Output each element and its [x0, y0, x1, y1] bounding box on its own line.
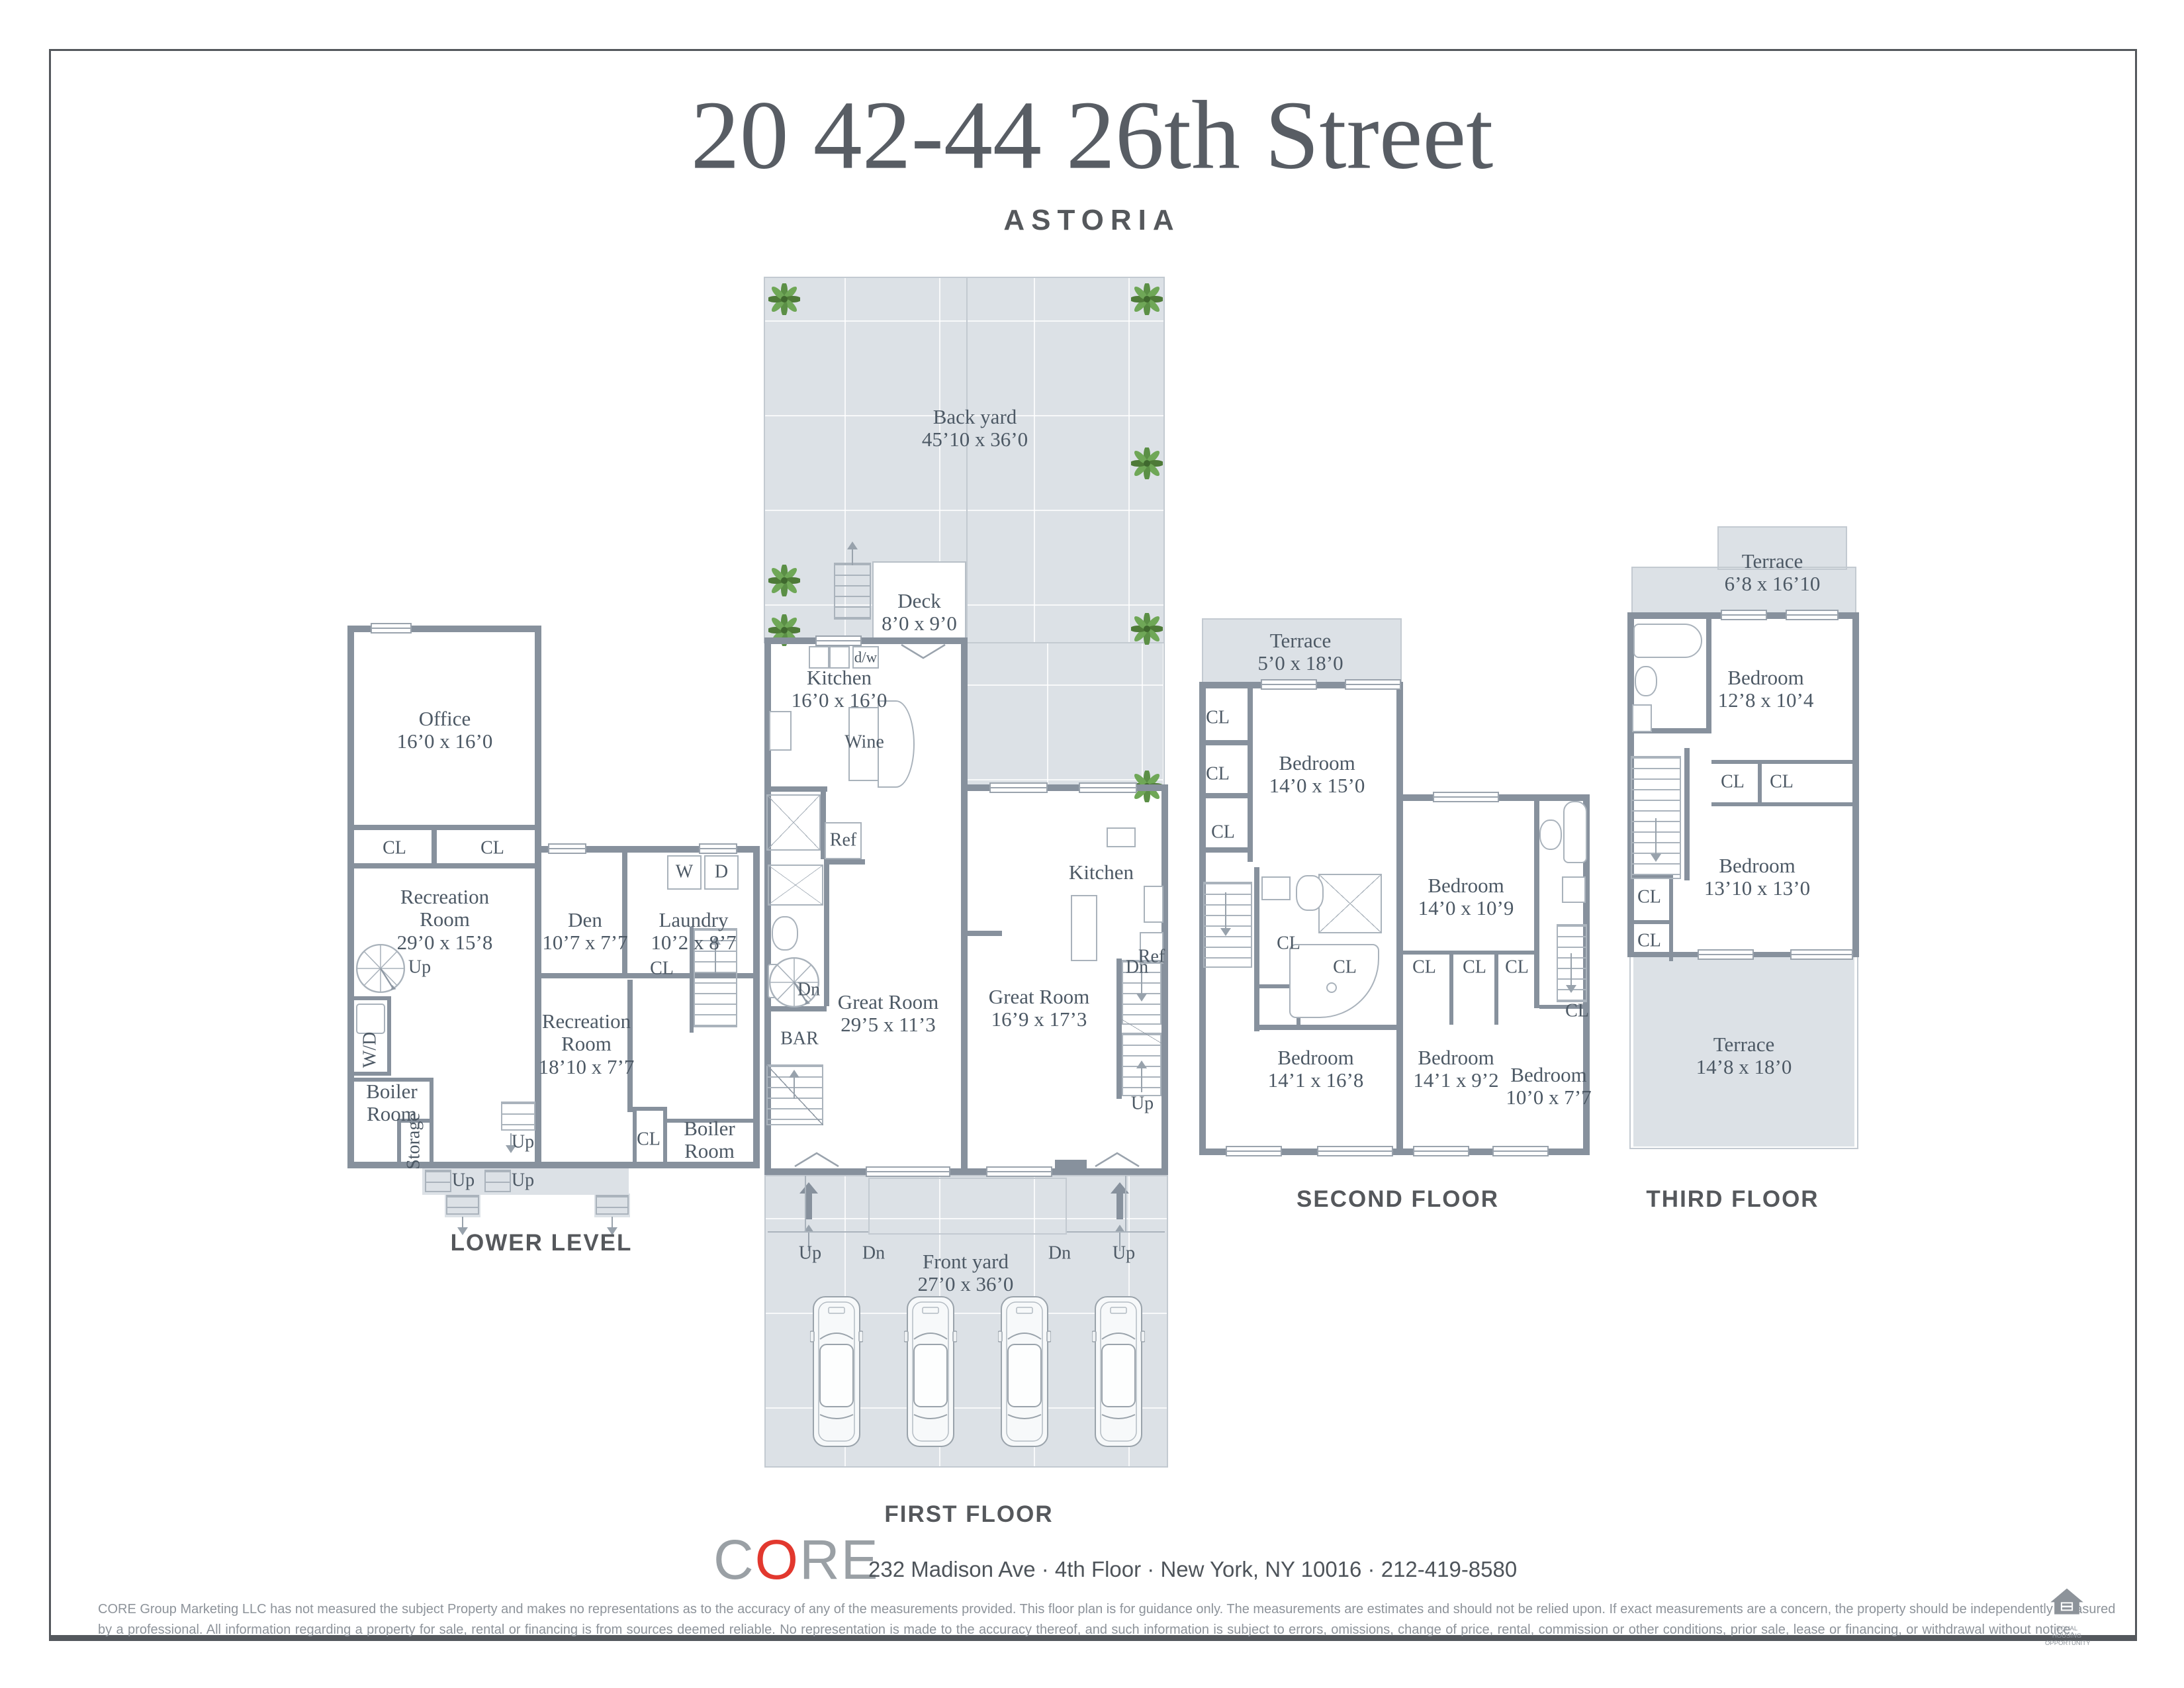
wall-segment — [1199, 740, 1253, 745]
lbl-floors-second-bed4-name: Bedroom — [1418, 1047, 1494, 1069]
lbl-floors-second-bed2-name: Bedroom — [1428, 874, 1504, 897]
lbl-floors-first-front-name: Front yard — [923, 1250, 1009, 1273]
lbl-floors-first-deck-name: Deck — [897, 590, 940, 612]
thin-line — [1067, 1231, 1165, 1233]
lbl-floors-second-bed1-dims: 14’0 x 15’0 — [1269, 774, 1365, 797]
fixture — [1563, 801, 1587, 863]
wall-segment — [1534, 798, 1539, 1008]
lbl-misc-up: Up — [512, 1171, 534, 1192]
window — [866, 1166, 950, 1177]
fixture — [1635, 666, 1657, 696]
lbl-misc-ref: Ref — [830, 831, 856, 851]
fixture — [356, 1004, 385, 1034]
lbl-misc-w: W — [676, 863, 693, 883]
plant-icon — [1131, 613, 1163, 645]
lbl-floors-first-kitchenL-name: Kitchen — [807, 667, 872, 689]
wall-segment — [1259, 1025, 1402, 1030]
lbl-floors-third-bed2-name: Bedroom — [1719, 855, 1795, 877]
lbl-misc-cl: CL — [1206, 765, 1230, 785]
lbl-floors-lower-name: LOWER LEVEL — [451, 1231, 633, 1256]
fixture — [1296, 875, 1324, 911]
lbl-floors-third-bed2-dims: 13’10 x 13’0 — [1704, 877, 1810, 900]
lbl-floors-second-bed3-dims: 14’1 x 16’8 — [1268, 1069, 1364, 1092]
lbl-floors-second-bed4-dims: 14’1 x 9’2 — [1413, 1069, 1498, 1092]
wall-segment — [1199, 793, 1253, 798]
area-outline — [966, 277, 1165, 790]
wall-segment — [1684, 748, 1690, 880]
staircase — [484, 1170, 511, 1192]
window — [1433, 792, 1499, 802]
lbl-floors-lower-laundry-dims: 10’2 x 8’7 — [651, 931, 736, 954]
lbl-floors-second-bed1-name: Bedroom — [1279, 752, 1355, 774]
window — [815, 635, 862, 646]
lbl-misc-cl: CL — [383, 839, 406, 859]
lbl-floors-third-terraceBottom-dims: 14’8 x 18’0 — [1696, 1056, 1792, 1078]
lbl-misc-d: D — [715, 863, 728, 883]
core-logo: CORE — [713, 1534, 880, 1585]
fixture — [1562, 876, 1586, 903]
lbl-misc-cl: CL — [480, 839, 504, 859]
window — [1786, 610, 1839, 620]
staircase — [834, 563, 871, 620]
lbl-misc-storage: Storage — [404, 1113, 425, 1170]
wall-segment — [764, 786, 827, 792]
staircase — [446, 1195, 479, 1215]
wall-segment — [1852, 612, 1859, 957]
lbl-misc-cl: CL — [1333, 958, 1357, 978]
plant-icon — [1131, 283, 1163, 315]
lbl-floors-second-bed5-dims: 10’0 x 7’7 — [1506, 1086, 1591, 1109]
lbl-misc-dn: Dn — [797, 980, 820, 1001]
car-icon — [810, 1289, 863, 1452]
car-icon — [1092, 1289, 1145, 1452]
down-arrow — [1566, 953, 1576, 993]
lbl-misc-cl: CL — [1637, 888, 1661, 908]
wall-segment — [1669, 875, 1673, 961]
lbl-misc-up: Up — [1113, 1244, 1135, 1264]
lbl-misc-up: Up — [799, 1244, 821, 1264]
wall-segment — [1758, 760, 1762, 806]
lbl-floors-first-backyard-dims: 45’10 x 36’0 — [922, 428, 1028, 451]
lbl-misc-up: Up — [1131, 1094, 1154, 1115]
shower-x-box — [766, 794, 821, 851]
fixture — [1071, 895, 1097, 961]
lbl-misc-cl: CL — [1721, 773, 1745, 793]
lbl-floors-lower-den-dims: 10’7 x 7’7 — [542, 931, 627, 954]
lbl-floors-first-greatL-dims: 29’5 x 11’3 — [841, 1013, 936, 1036]
shower-x-box — [768, 865, 823, 906]
page-title: 20 42-44 26th Street — [691, 82, 1494, 190]
wall-segment — [1400, 951, 1534, 955]
lbl-misc-dn: Dn — [1048, 1244, 1071, 1264]
window — [371, 623, 412, 633]
core-logo-c: C — [713, 1528, 755, 1591]
door-swing-icon — [900, 643, 946, 659]
fixture — [1144, 886, 1163, 923]
lbl-floors-first-kitchenL-dims: 16’0 x 16’0 — [792, 689, 887, 712]
lbl-misc-cl: CL — [1505, 958, 1529, 978]
window — [1226, 1146, 1282, 1156]
lbl-floors-second-bed2-dims: 14’0 x 10’9 — [1418, 897, 1514, 919]
down-arrow — [1651, 818, 1661, 862]
window — [1413, 1146, 1469, 1156]
staircase — [501, 1102, 535, 1131]
wall-segment — [387, 996, 391, 1076]
wall-segment — [353, 825, 536, 830]
lbl-floors-first-greatL-name: Great Room — [838, 991, 938, 1013]
fixture — [1539, 820, 1562, 850]
window — [1721, 610, 1767, 620]
lbl-floors-third-terraceBottom-name: Terrace — [1713, 1033, 1774, 1056]
lbl-floors-first-kitchenR-name: Kitchen — [1069, 861, 1134, 884]
lbl-misc-bar: BAR — [780, 1029, 819, 1050]
lbl-misc-cl: CL — [650, 959, 674, 980]
lbl-floors-second-terrace-dims: 5’0 x 18’0 — [1257, 652, 1343, 675]
window — [1079, 782, 1137, 793]
door-swing-icon — [1093, 1152, 1141, 1168]
wall-segment — [824, 859, 865, 865]
wall-segment — [1711, 760, 1857, 764]
staircase — [425, 1170, 451, 1192]
lbl-misc-cl: CL — [1211, 823, 1235, 843]
fixture — [1326, 982, 1337, 993]
lbl-floors-lower-office-dims: 16’0 x 16’0 — [397, 730, 493, 753]
wall-segment — [1706, 619, 1711, 733]
lbl-floors-third-name: THIRD FLOOR — [1646, 1187, 1819, 1213]
window — [986, 1166, 1052, 1177]
lbl-floors-first-greatR-name: Great Room — [989, 986, 1089, 1008]
page-subtitle: ASTORIA — [1003, 205, 1180, 236]
window — [699, 843, 737, 854]
window — [1261, 679, 1317, 690]
wall-segment — [397, 1119, 401, 1165]
wall-segment — [622, 846, 627, 978]
lbl-floors-lower-den-name: Den — [568, 909, 602, 931]
up-arrow — [1136, 1060, 1147, 1092]
lbl-floors-first-name: FIRST FLOOR — [884, 1502, 1053, 1528]
lbl-floors-second-bed3-name: Bedroom — [1277, 1047, 1353, 1069]
wall-segment — [535, 626, 541, 1168]
wall-segment — [353, 996, 391, 1000]
lbl-floors-lower-rec1-dims: 29’0 x 15’8 — [397, 931, 493, 954]
lbl-floors-lower-rec2-dims: 18’10 x 7’7 — [539, 1056, 635, 1078]
wall-segment — [1055, 1160, 1087, 1175]
lbl-misc-dn: Dn — [862, 1244, 885, 1264]
lbl-misc-dn: Dn — [1126, 958, 1148, 978]
area-outline — [868, 1178, 1067, 1235]
wall-segment — [1161, 784, 1168, 1175]
lbl-misc-dw: d/w — [854, 649, 878, 665]
window — [1317, 1146, 1393, 1156]
window — [989, 782, 1048, 793]
down-arrow — [1220, 892, 1231, 936]
entry-arrow — [799, 1182, 818, 1219]
wall-segment — [1248, 688, 1253, 862]
fixture — [809, 646, 829, 669]
lbl-misc-cl: CL — [637, 1130, 660, 1150]
lbl-misc-cl: CL — [1412, 958, 1436, 978]
lbl-floors-lower-boiler2-name: Boiler Room — [684, 1117, 735, 1162]
staircase — [596, 1195, 629, 1215]
fixture — [1633, 624, 1702, 658]
stair-divider — [1122, 1019, 1161, 1043]
lbl-floors-second-name: SECOND FLOOR — [1297, 1187, 1499, 1213]
plant-icon — [768, 283, 800, 315]
wall-segment — [1711, 802, 1857, 806]
wall-segment — [1627, 920, 1671, 924]
thin-line — [805, 1176, 806, 1233]
wall-segment — [1449, 951, 1453, 1025]
equal-housing-logo: EQUAL HOUSING OPPORTUNITY — [2045, 1587, 2089, 1647]
wall-segment — [353, 1072, 391, 1076]
thin-line — [1125, 1176, 1126, 1233]
fixture — [772, 916, 798, 951]
lbl-floors-first-deck-dims: 8’0 x 9’0 — [882, 612, 957, 635]
lbl-misc-cl: CL — [1770, 773, 1794, 793]
lbl-misc-wd: W/D — [361, 1032, 381, 1068]
disclaimer-line-2: by a professional. All information regar… — [98, 1622, 2074, 1638]
lbl-misc-cl: CL — [1565, 1002, 1589, 1022]
car-icon — [998, 1289, 1051, 1452]
lbl-floors-second-bed5-name: Bedroom — [1510, 1064, 1586, 1086]
lbl-floors-first-greatR-dims: 16’9 x 17’3 — [991, 1008, 1087, 1031]
lbl-floors-lower-rec2-name: Recreation Room — [542, 1010, 631, 1055]
wall-segment — [633, 1107, 666, 1111]
lbl-misc-up: Up — [512, 1133, 534, 1153]
wall-segment — [824, 865, 829, 1006]
wall-segment — [961, 637, 968, 1175]
lbl-misc-cl: CL — [1463, 958, 1486, 978]
wall-segment — [1396, 682, 1403, 1155]
lbl-floors-third-bed1-name: Bedroom — [1727, 667, 1803, 689]
window — [1790, 949, 1853, 960]
wall-segment — [1199, 847, 1253, 853]
lbl-misc-wine: Wine — [844, 733, 884, 753]
lbl-misc-cl: CL — [1277, 934, 1300, 955]
wall-segment — [1494, 951, 1498, 1025]
lbl-misc-cl: CL — [1206, 708, 1230, 729]
lbl-floors-third-terraceTop-name: Terrace — [1742, 550, 1803, 573]
core-logo-re: RE — [799, 1528, 880, 1591]
window — [548, 843, 586, 854]
wall-segment — [432, 825, 437, 868]
fixture — [1261, 876, 1291, 900]
lbl-misc-cl: CL — [1637, 931, 1661, 952]
lbl-floors-lower-office-name: Office — [419, 708, 471, 730]
disclaimer-line-1: CORE Group Marketing LLC has not measure… — [98, 1602, 2074, 1617]
up-arrow — [847, 541, 858, 565]
fixture — [769, 711, 792, 751]
wall-segment — [753, 846, 760, 1168]
core-logo-o: O — [755, 1528, 799, 1591]
wall-segment — [1254, 867, 1259, 1031]
window — [1345, 679, 1401, 690]
office-address: 232 Madison Ave · 4th Floor · New York, … — [868, 1557, 1517, 1582]
up-arrow — [789, 1070, 799, 1099]
wall-segment — [633, 1107, 637, 1165]
wall-segment — [663, 1107, 667, 1165]
lbl-floors-second-terrace-name: Terrace — [1270, 630, 1331, 652]
lbl-floors-lower-laundry-name: Laundry — [659, 909, 728, 931]
lbl-misc-up: Up — [452, 1171, 475, 1192]
lbl-floors-third-terraceTop-dims: 6’8 x 16’10 — [1725, 573, 1821, 595]
fixture — [829, 646, 850, 669]
wall-segment — [353, 863, 536, 868]
thin-line — [768, 1231, 868, 1233]
window — [1698, 949, 1754, 960]
wall-segment — [347, 626, 354, 1168]
equal-housing-text: EQUAL HOUSING OPPORTUNITY — [2045, 1625, 2089, 1647]
lbl-misc-up: Up — [408, 958, 431, 978]
lbl-floors-first-front-dims: 27’0 x 36’0 — [918, 1273, 1014, 1295]
wall-segment — [1116, 959, 1122, 1099]
plant-icon — [768, 565, 800, 596]
floorplan-page: 20 42-44 26th Street ASTORIA Office16’0 … — [0, 0, 2184, 1688]
window — [1492, 1146, 1549, 1156]
lbl-floors-third-bed1-dims: 12’8 x 10’4 — [1718, 689, 1814, 712]
door-swing-icon — [793, 1152, 841, 1168]
equal-housing-house-icon — [2050, 1587, 2084, 1620]
fixture — [1632, 704, 1652, 732]
car-icon — [904, 1289, 957, 1452]
fixture — [1107, 827, 1136, 847]
plant-icon — [1131, 447, 1163, 479]
wall-segment — [961, 931, 1002, 936]
lbl-floors-first-backyard-name: Back yard — [933, 406, 1017, 428]
shower-x-box — [1318, 874, 1382, 933]
lbl-floors-lower-rec1-name: Recreation Room — [400, 886, 489, 931]
